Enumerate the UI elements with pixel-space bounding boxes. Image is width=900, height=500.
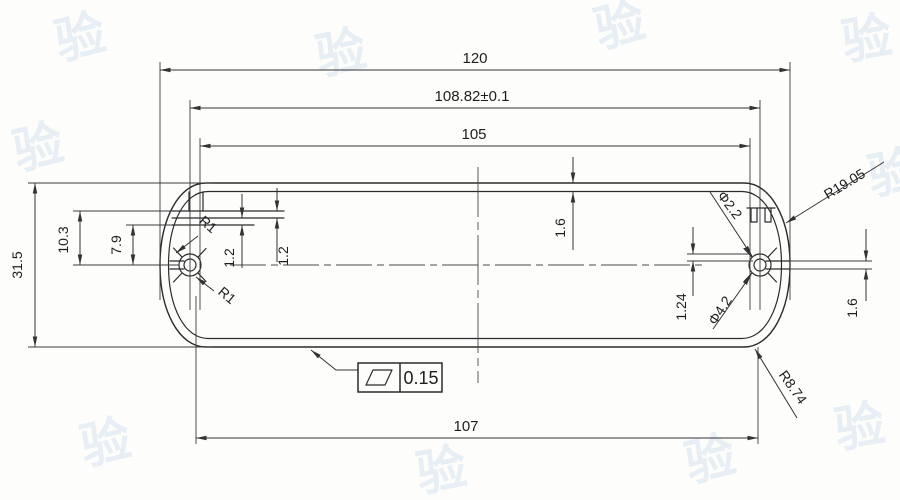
dim-corner-radius-text: R8.74	[776, 367, 811, 407]
watermark-glyph: 验	[837, 7, 896, 71]
ext-inner-width	[200, 138, 750, 310]
watermark-glyph: 验	[679, 426, 741, 492]
dim-flat-width-text: 107	[453, 418, 478, 435]
left-step-lines	[172, 211, 284, 225]
dim-inner-width-text: 105	[461, 126, 486, 143]
watermark-glyph: 验	[311, 21, 372, 86]
dim-boss-centers-text: 108.82±0.1	[435, 88, 510, 105]
leader-fillet-a	[176, 236, 198, 253]
flatness-value-text: 0.15	[403, 368, 438, 388]
flatness-leader	[311, 350, 358, 370]
watermark-glyph: 验	[588, 0, 651, 59]
right-boss-slot	[766, 261, 790, 269]
dim-top-wall-text: 1.6	[552, 218, 568, 238]
watermark-glyph: 验	[49, 4, 111, 70]
dim-fillet-b-text: R1	[215, 283, 239, 307]
profile-drawing-canvas: 验 验 验 验 验 验 验 验 验 验	[0, 0, 900, 500]
centerlines	[230, 167, 702, 383]
dim-boss-wall-text: 1.24	[673, 293, 689, 320]
dim-overall-width-text: 120	[462, 50, 487, 67]
watermark-glyph: 验	[863, 141, 900, 206]
watermark-glyph: 验	[7, 114, 69, 180]
flatness-tolerance-callout: 0.15	[311, 350, 442, 392]
right-serration-teeth	[747, 208, 775, 222]
dim-right-slot-text: 1.6	[844, 298, 860, 318]
dimensions: 120 108.82±0.1 105 31.5 10.3 7.9 1.2 1.2…	[9, 50, 884, 438]
watermark-glyph: 验	[411, 438, 471, 500]
dim-rib-a-text: 1.2	[221, 248, 237, 268]
dim-overall-height-text: 31.5	[9, 251, 25, 278]
ext-right-slot	[790, 261, 872, 269]
drawing-sheet: 验 验 验 验 验 验 验 验 验 验	[0, 0, 900, 500]
ext-boss-wall	[687, 254, 753, 261]
extension-lines	[28, 62, 872, 444]
ext-step-depth	[73, 211, 179, 265]
dim-boss-diameter-text: Φ4.2	[705, 293, 735, 328]
watermark-glyph: 验	[75, 410, 136, 476]
watermark-glyph: 验	[830, 395, 889, 459]
dim-step-depth-text: 10.3	[55, 226, 71, 253]
leader-fillet-b	[196, 277, 214, 291]
dim-rib-b-text: 1.2	[275, 246, 291, 266]
dim-groove-depth-text: 7.9	[108, 235, 124, 255]
dim-end-radius-text: R19.05	[821, 165, 868, 202]
